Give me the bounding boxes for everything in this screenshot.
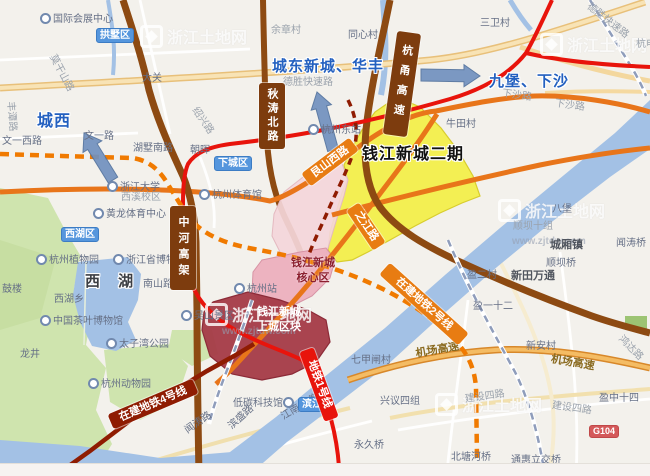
road-banner-qiutao: 秋涛北路 [259,83,285,149]
poi-label: 文一西路 [2,136,42,147]
zone-label-core-line1: 钱江新城 [283,256,343,271]
poi-label: 文一路 [84,131,114,142]
poi-label: 八堡 [552,204,572,215]
road-banner-zhonghe: 中河高架 [170,206,196,290]
poi-label: 湖墅南路 [133,143,173,154]
poi-label: 余章村 [271,25,301,36]
zone-label-shangcheng-line1: 钱江新城 [248,305,310,320]
highway-badge-g104: G104 [589,425,619,438]
map-canvas: 浙江土地网 浙江土地网 浙江土地网 www.zjtdw.com 浙江土地网 ww… [0,0,650,476]
poi-label: 西湖乡 [54,294,84,305]
poi-label: 龙井 [20,349,40,360]
poi-label: 杭州动物园 [88,378,151,390]
poi-label: 永久桥 [354,440,384,451]
poi-label: 鼓楼 [2,284,22,295]
district-badge-xiacheng: 下城区 [214,156,252,171]
poi-label: 七甲闸村 [351,355,391,366]
poi-label: 盈中十四 [599,393,639,404]
zone-label-core: 钱江新城 核心区 [283,256,343,286]
region-label-qjnc-phase2: 钱江新城二期 [362,140,464,164]
district-badge-gongshu: 拱墅区 [96,28,134,43]
zone-label-core-line2: 核心区 [283,271,343,286]
poi-label: 南山路 [143,279,173,290]
poi-label: 同心村 [348,30,378,41]
poi-label: 国际会展中心 [40,13,113,25]
poi-label: 杭州东站 [308,124,361,136]
poi-label: 低碳科技馆 [233,397,296,409]
region-label-xihu: 西 湖 [85,270,140,291]
region-label-chengdong: 城东新城、华丰 [272,55,384,76]
poi-label: 杭州体育馆 [199,189,262,201]
poi-label: 杭电 [636,39,650,50]
poi-label: 德胜快速路 [283,77,333,88]
poi-icon [36,254,47,265]
poi-label: 兴议四组 [380,396,420,407]
poi-icon [40,13,51,24]
poi-label: 黄龙体育中心 [93,208,166,220]
poi-label: 大关 [142,73,162,84]
poi-label: 杭州站 [234,283,277,295]
poi-label: 顺坝十组 [513,221,553,232]
poi-label: 城厢镇 [550,240,583,251]
poi-label: 杭州植物园 [36,254,99,266]
poi-icon [283,397,294,408]
poi-label: 北塘河桥 [451,452,491,463]
region-label-jiubao: 九堡、下沙 [489,70,569,91]
poi-label: 顺坝桥 [546,258,576,269]
poi-icon [181,310,192,321]
poi-icon [106,338,117,349]
poi-label: 太子湾公园 [106,338,169,350]
poi-label: 西溪校区 [121,192,161,203]
poi-label: 中国茶叶博物馆 [40,315,123,327]
poi-label: 盈二村 [467,270,497,281]
poi-label: 闻涛桥 [616,238,646,249]
poi-label: 新田万通 [511,271,555,282]
poi-label: 三卫村 [480,18,510,29]
poi-label: 朝晖 [190,145,210,156]
poi-label: 盈一十二 [473,301,513,312]
poi-icon [107,181,118,192]
poi-label: 吴山景区 [181,310,234,322]
poi-icon [88,378,99,389]
poi-icon [93,208,104,219]
poi-icon [40,315,51,326]
poi-icon [199,189,210,200]
zone-label-shangcheng: 钱江新城 上城区块 [248,305,310,335]
bottom-strip [0,463,650,476]
poi-label: 牛田村 [446,119,476,130]
poi-icon [308,124,319,135]
poi-label: 新安村 [526,341,556,352]
poi-icon [113,254,124,265]
poi-icon [234,283,245,294]
zone-label-shangcheng-line2: 上城区块 [248,320,310,335]
district-badge-xihu: 西湖区 [61,227,99,242]
region-label-chengxi: 城西 [37,107,71,131]
